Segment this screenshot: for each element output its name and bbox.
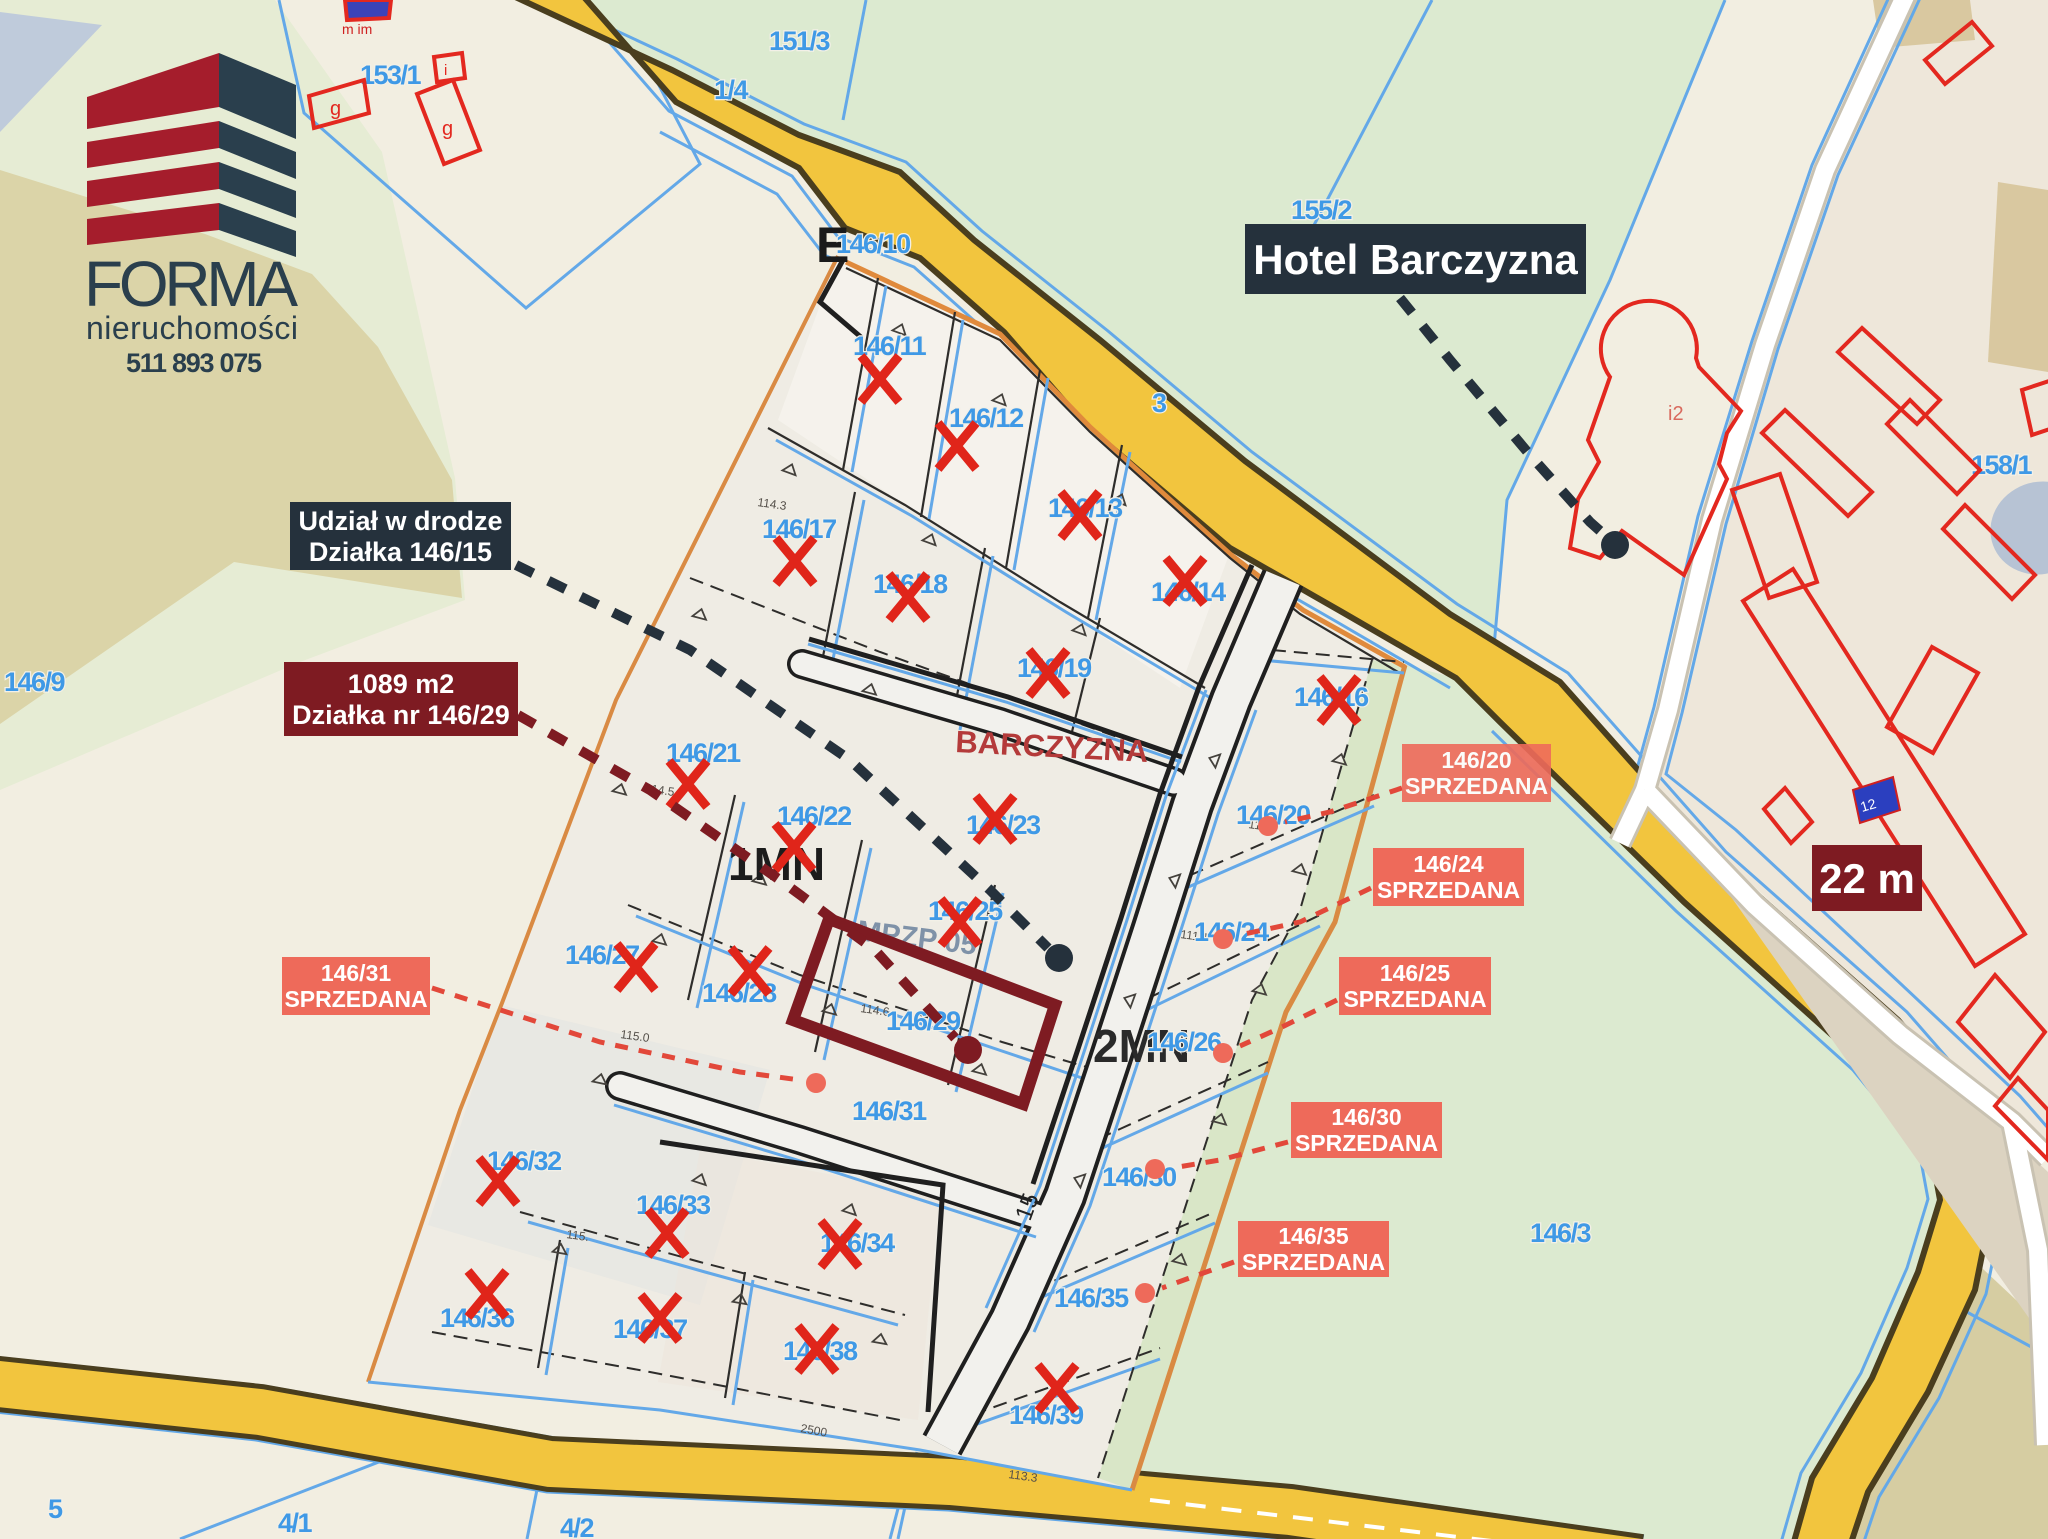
svg-text:SPRZEDANA: SPRZEDANA	[1343, 986, 1486, 1012]
svg-text:146/30: 146/30	[1102, 1162, 1176, 1192]
svg-text:nieruchomości: nieruchomości	[86, 310, 298, 346]
svg-text:22 m: 22 m	[1819, 855, 1915, 902]
svg-text:146/3: 146/3	[1530, 1218, 1592, 1248]
svg-text:146/30: 146/30	[1331, 1104, 1401, 1130]
svg-text:g: g	[442, 118, 453, 140]
svg-text:153/1: 153/1	[360, 60, 422, 90]
svg-text:146/24: 146/24	[1413, 851, 1484, 877]
svg-text:146/12: 146/12	[949, 403, 1023, 433]
svg-text:i: i	[444, 62, 447, 79]
svg-text:i2: i2	[1668, 403, 1684, 425]
svg-text:146/26: 146/26	[1147, 1027, 1222, 1057]
svg-text:155/2: 155/2	[1291, 195, 1352, 225]
svg-text:146/17: 146/17	[762, 514, 836, 544]
svg-text:g: g	[330, 98, 341, 120]
svg-text:Udział w drodze: Udział w drodze	[298, 506, 502, 536]
svg-text:SPRZEDANA: SPRZEDANA	[1405, 773, 1548, 799]
svg-text:146/31: 146/31	[852, 1096, 927, 1126]
svg-text:Hotel Barczyzna: Hotel Barczyzna	[1253, 236, 1578, 283]
svg-text:146/32: 146/32	[487, 1146, 561, 1176]
svg-text:511 893 075: 511 893 075	[126, 348, 262, 378]
svg-text:5: 5	[48, 1494, 63, 1524]
svg-text:158/1: 158/1	[1971, 450, 2033, 480]
svg-text:146/20: 146/20	[1441, 747, 1511, 773]
svg-text:4/1: 4/1	[278, 1508, 313, 1538]
svg-text:151/3: 151/3	[769, 26, 831, 56]
svg-text:SPRZEDANA: SPRZEDANA	[1295, 1130, 1438, 1156]
svg-text:1/4: 1/4	[714, 75, 749, 105]
svg-text:m im: m im	[342, 21, 372, 37]
svg-text:146/9: 146/9	[4, 667, 66, 697]
svg-text:Działka nr 146/29: Działka nr 146/29	[292, 700, 510, 730]
svg-text:146/35: 146/35	[1054, 1283, 1129, 1313]
svg-text:3: 3	[1152, 388, 1167, 418]
svg-text:SPRZEDANA: SPRZEDANA	[1377, 877, 1520, 903]
svg-text:SPRZEDANA: SPRZEDANA	[1242, 1249, 1385, 1275]
svg-text:1089 m2: 1089 m2	[348, 669, 455, 699]
svg-text:146/35: 146/35	[1278, 1223, 1349, 1249]
svg-text:4/2: 4/2	[560, 1513, 594, 1539]
svg-text:146/31: 146/31	[321, 960, 392, 986]
svg-text:146/25: 146/25	[1380, 960, 1451, 986]
svg-text:SPRZEDANA: SPRZEDANA	[284, 986, 427, 1012]
svg-text:146/10: 146/10	[836, 229, 910, 259]
svg-text:Działka 146/15: Działka 146/15	[309, 537, 492, 567]
